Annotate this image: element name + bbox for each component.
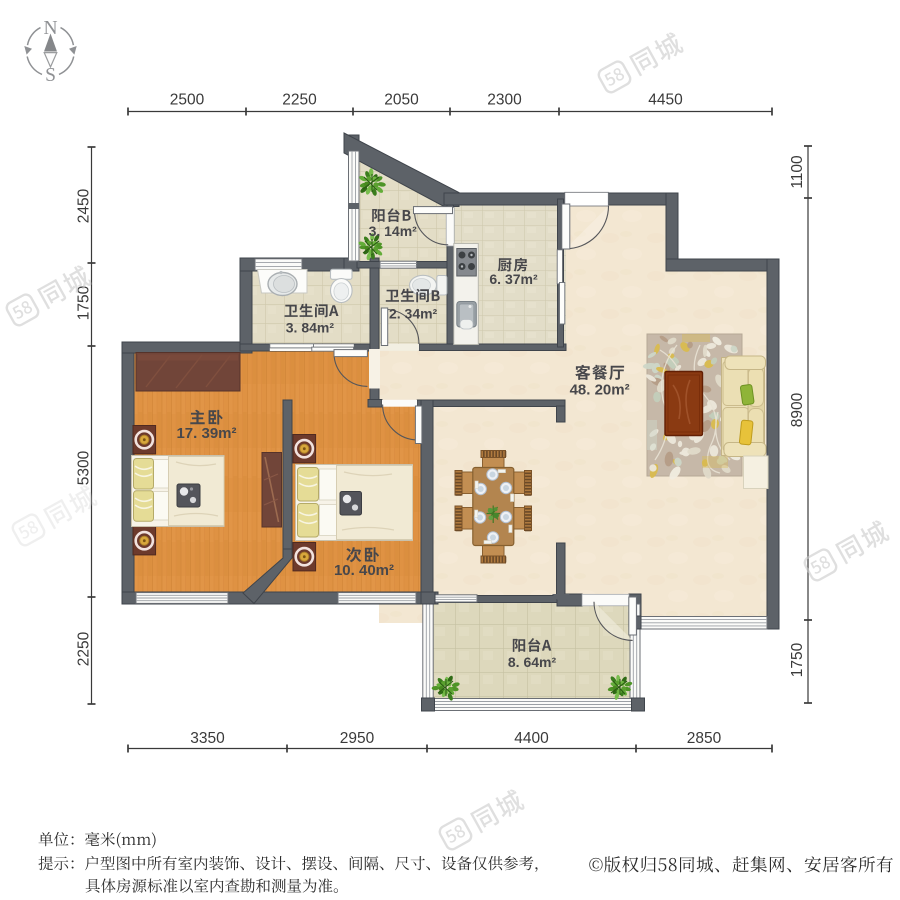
svg-text:8. 64m²: 8. 64m²	[508, 654, 557, 670]
svg-text:48. 20m²: 48. 20m²	[570, 382, 630, 399]
svg-text:3350: 3350	[190, 730, 225, 747]
svg-text:8900: 8900	[789, 392, 806, 427]
svg-text:2500: 2500	[170, 92, 205, 109]
svg-text:S: S	[45, 65, 56, 86]
svg-text:2250: 2250	[282, 92, 317, 109]
svg-text:4400: 4400	[514, 730, 549, 747]
svg-text:2450: 2450	[76, 188, 93, 223]
svg-text:2250: 2250	[76, 631, 93, 666]
svg-text:17. 39m²: 17. 39m²	[176, 425, 236, 442]
svg-text:3. 14m²: 3. 14m²	[369, 223, 418, 239]
svg-text:2. 34m²: 2. 34m²	[389, 306, 438, 322]
svg-text:1100: 1100	[789, 155, 806, 189]
svg-text:1750: 1750	[789, 642, 806, 677]
svg-text:2050: 2050	[384, 92, 419, 109]
svg-text:4450: 4450	[648, 92, 683, 109]
svg-text:6. 37m²: 6. 37m²	[489, 271, 538, 287]
svg-text:N: N	[43, 18, 57, 39]
svg-text:2300: 2300	[487, 92, 522, 109]
svg-text:10. 40m²: 10. 40m²	[334, 562, 394, 579]
svg-text:2950: 2950	[340, 730, 375, 747]
svg-text:2850: 2850	[687, 730, 722, 747]
svg-text:5300: 5300	[76, 450, 93, 485]
svg-text:3. 84m²: 3. 84m²	[286, 320, 335, 336]
